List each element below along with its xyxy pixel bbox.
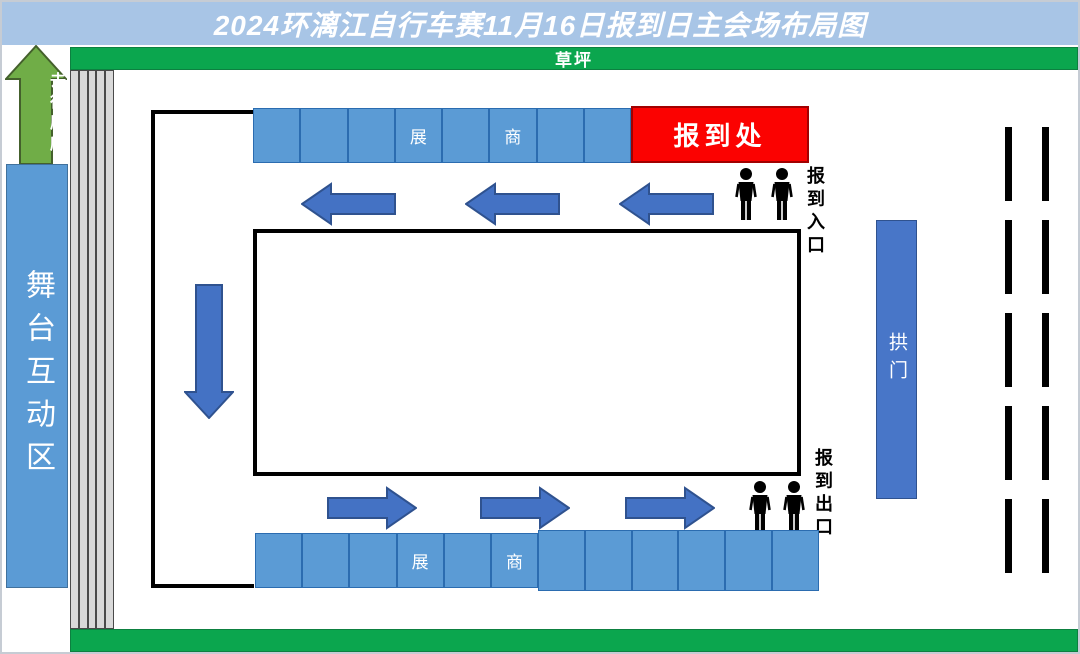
- booth-cell: [725, 530, 772, 591]
- toilet-arrow-label: 去往厕所: [5, 64, 67, 164]
- booth-cell: [255, 533, 302, 588]
- booth-cell: [444, 533, 491, 588]
- flow-arrow-down-icon: [184, 284, 234, 419]
- exhibitor-row-bottom-left: 展商: [255, 533, 538, 588]
- booth-cell: [678, 530, 725, 591]
- step: [70, 70, 79, 629]
- arch-label: 拱门: [883, 332, 910, 388]
- person-icon: [733, 168, 759, 220]
- stage-interaction-zone: 舞台互动区: [6, 164, 68, 588]
- flow-arrow-right-icon: [327, 486, 417, 530]
- toilet-direction-arrow: 去往厕所: [5, 45, 67, 166]
- booth-cell: [442, 108, 489, 163]
- booth-cell: [585, 530, 632, 591]
- booth-cell: 商: [491, 533, 538, 588]
- step: [88, 70, 97, 629]
- booth-cell: [349, 533, 396, 588]
- booth-cell: [348, 108, 395, 163]
- entrance-label: 报到入口: [806, 166, 824, 281]
- booth-cell: [632, 530, 679, 591]
- step: [105, 70, 114, 629]
- road-dashed-line: [1005, 127, 1012, 573]
- person-icon: [781, 480, 807, 534]
- booth-cell: [300, 108, 347, 163]
- flow-arrow-right-icon: [625, 486, 715, 530]
- flow-arrow-left-icon: [465, 182, 560, 226]
- booth-cell: [772, 530, 819, 591]
- registration-desk: 报到处: [631, 106, 809, 163]
- step: [79, 70, 88, 629]
- central-area-outline: [253, 229, 801, 476]
- lawn-strip-bottom: [70, 629, 1078, 652]
- booth-cell: [584, 108, 631, 163]
- booth-cell: 商: [489, 108, 536, 163]
- booth-cell: 展: [395, 108, 442, 163]
- exhibitor-row-top: 展商: [253, 108, 631, 163]
- registration-desk-label: 报到处: [673, 116, 766, 153]
- lawn-strip-top: 草坪: [70, 47, 1078, 70]
- booth-cell: [537, 108, 584, 163]
- arch-gate: 拱门: [876, 220, 917, 499]
- venue-layout-diagram: 2024环漓江自行车赛11月16日报到日主会场布局图 草坪 去往厕所 舞台互动区…: [0, 0, 1080, 654]
- flow-arrow-left-icon: [619, 182, 714, 226]
- booth-cell: [302, 533, 349, 588]
- person-icon: [769, 168, 795, 220]
- page-title: 2024环漓江自行车赛11月16日报到日主会场布局图: [214, 4, 867, 44]
- booth-cell: [253, 108, 300, 163]
- lawn-label: 草坪: [555, 46, 593, 71]
- booth-cell: [538, 530, 585, 591]
- steps-strip: [70, 70, 114, 629]
- flow-arrow-left-icon: [301, 182, 396, 226]
- road-dashed-line: [1042, 127, 1049, 573]
- exhibitor-row-bottom-right: [538, 530, 819, 591]
- flow-arrow-right-icon: [480, 486, 570, 530]
- stage-label: 舞台互动区: [15, 269, 59, 484]
- title-bar: 2024环漓江自行车赛11月16日报到日主会场布局图: [2, 2, 1078, 45]
- person-icon: [747, 480, 773, 534]
- step: [96, 70, 105, 629]
- booth-cell: 展: [397, 533, 444, 588]
